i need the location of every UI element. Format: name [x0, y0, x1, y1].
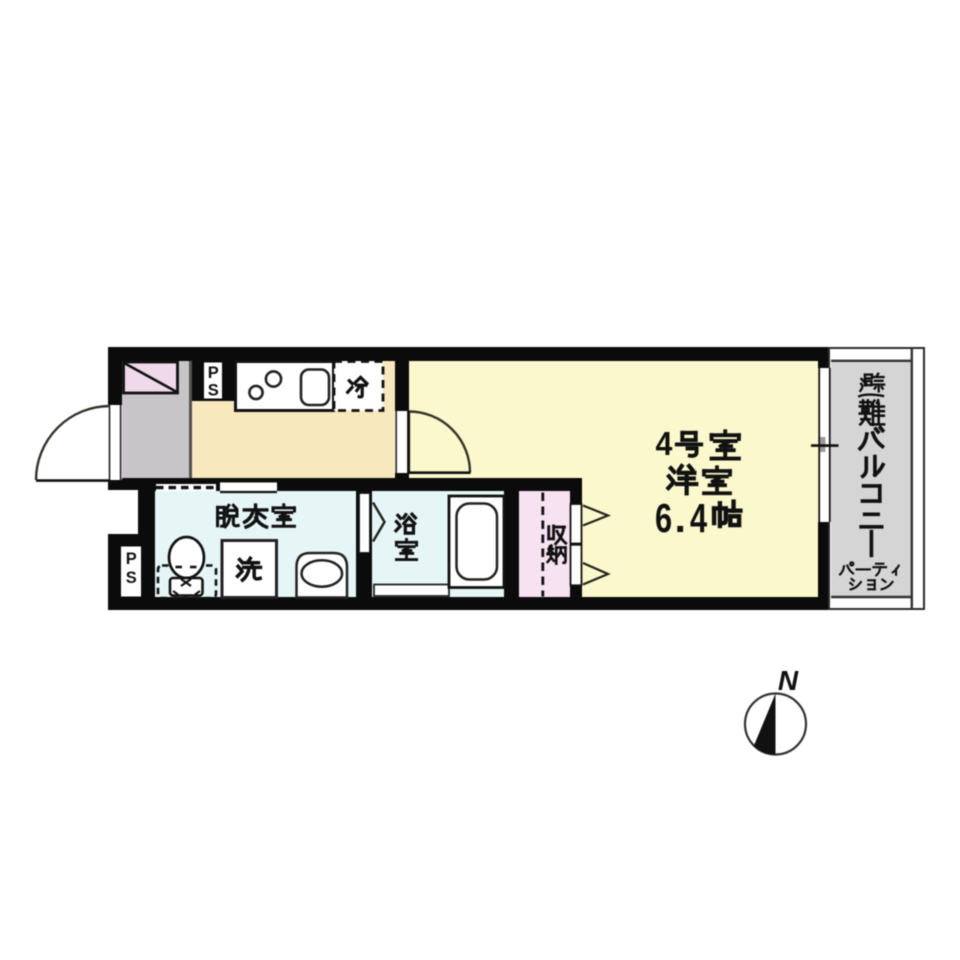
svg-text:S: S	[208, 382, 219, 400]
svg-text:P: P	[208, 364, 219, 382]
svg-text:4: 4	[690, 494, 707, 540]
svg-text:S: S	[126, 569, 137, 587]
svg-text:.: .	[675, 495, 686, 541]
svg-text:6: 6	[655, 494, 672, 540]
svg-text:4: 4	[656, 425, 673, 462]
svg-text:N: N	[778, 665, 799, 696]
svg-text:P: P	[126, 550, 137, 568]
